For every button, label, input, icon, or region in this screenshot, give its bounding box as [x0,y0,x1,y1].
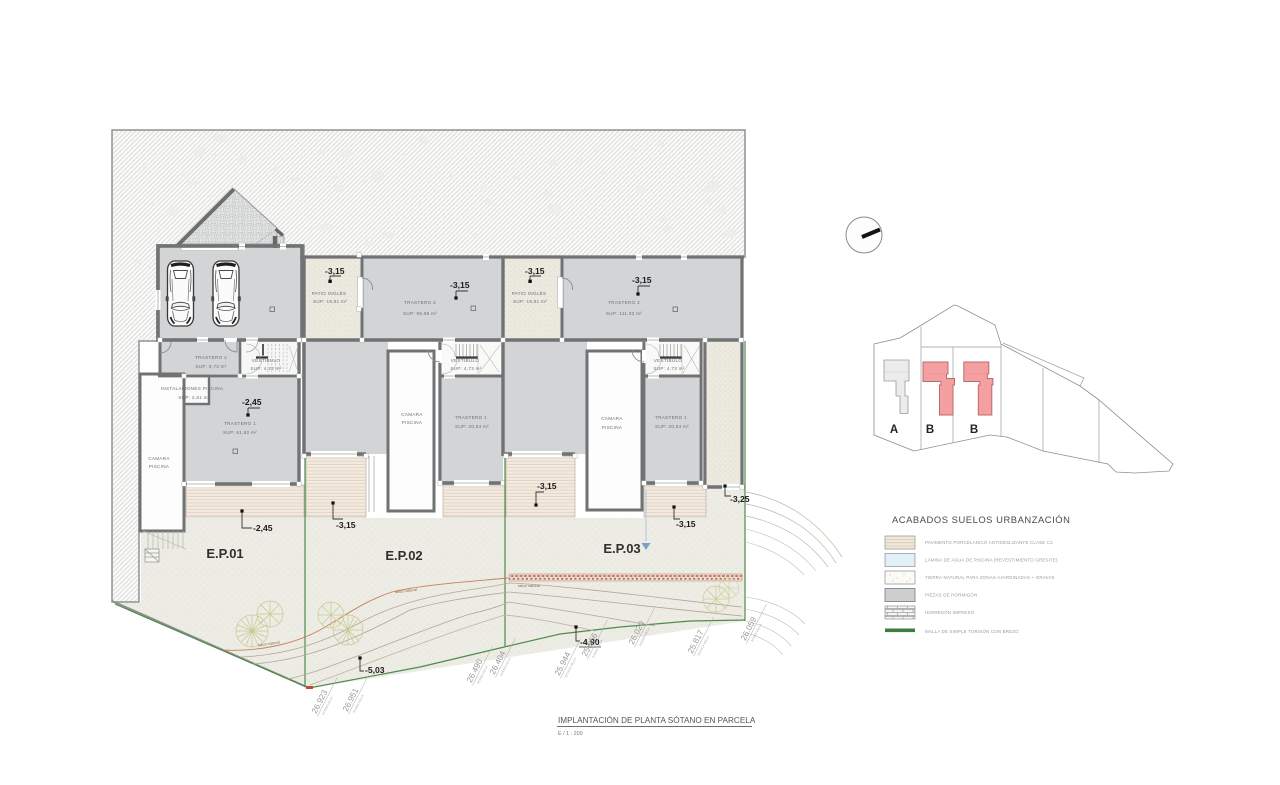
svg-text:SUP: 4,23 m²: SUP: 4,23 m² [250,366,281,371]
svg-text:SUP: 111,03 m²: SUP: 111,03 m² [606,311,642,316]
svg-text:PISCINA: PISCINA [602,425,623,430]
svg-text:TIERRA NATURAL PARA ZONAS AJAR: TIERRA NATURAL PARA ZONAS AJARDINADAS + … [925,575,1055,580]
svg-text:E.P.02: E.P.02 [385,548,422,563]
svg-text:TRASTERO 2: TRASTERO 2 [608,300,640,305]
svg-text:HORMIGÓN IMPRESO: HORMIGÓN IMPRESO [925,610,975,615]
svg-text:-3,15: -3,15 [450,280,470,290]
svg-text:-3,15: -3,15 [632,275,652,285]
svg-text:E.P.03: E.P.03 [603,541,640,556]
svg-text:-2,45: -2,45 [253,523,273,533]
svg-text:MALLA DE SIMPLE TORSIÓN CON BR: MALLA DE SIMPLE TORSIÓN CON BREZO [925,629,1019,634]
svg-text:-3,15: -3,15 [676,519,696,529]
svg-text:IMPLANTACIÓN DE PLANTA SÓTANO: IMPLANTACIÓN DE PLANTA SÓTANO EN PARCELA [558,715,756,725]
svg-text:-5,03: -5,03 [365,665,385,675]
svg-text:E / 1 : 200: E / 1 : 200 [558,731,583,737]
svg-text:VESTIBULO: VESTIBULO [451,358,480,363]
svg-text:B: B [926,424,934,436]
svg-text:-3,15: -3,15 [537,481,557,491]
svg-text:PIEZAS DE HORMIGÓN: PIEZAS DE HORMIGÓN [925,593,977,598]
svg-text:TRASTERO 1: TRASTERO 1 [224,421,256,426]
svg-text:CAMARA: CAMARA [401,412,423,417]
svg-text:ACABADOS SUELOS URBANZACIÓN: ACABADOS SUELOS URBANZACIÓN [892,514,1070,525]
svg-text:-3,15: -3,15 [325,266,345,276]
svg-text:SUP: 61,92 m²: SUP: 61,92 m² [223,430,257,435]
svg-text:E.P.01: E.P.01 [206,546,243,561]
svg-text:VESTIBULO: VESTIBULO [252,358,281,363]
svg-text:TRASTERO 2: TRASTERO 2 [404,300,436,305]
svg-text:SUP: 19,91 m²: SUP: 19,91 m² [513,299,547,304]
svg-text:SUP: 20,64 m²: SUP: 20,64 m² [455,424,489,429]
svg-text:PISCINA: PISCINA [402,420,423,425]
svg-text:INSTALACIONES PISCINA: INSTALACIONES PISCINA [161,386,224,391]
svg-text:PATIO INGLÉS: PATIO INGLÉS [312,290,347,296]
svg-text:-2,45: -2,45 [242,397,262,407]
svg-text:-3,15: -3,15 [525,266,545,276]
svg-text:A: A [890,424,898,436]
svg-text:-3,15: -3,15 [336,520,356,530]
svg-text:SUP: 4,73 m²: SUP: 4,73 m² [653,366,684,371]
svg-text:TRASTERO 2: TRASTERO 2 [195,355,227,360]
svg-text:SUP: 4,73 m²: SUP: 4,73 m² [450,366,481,371]
svg-text:VESTIBULO: VESTIBULO [654,358,683,363]
svg-text:PAVIMENTO PORCELANICO ANTIDESL: PAVIMENTO PORCELANICO ANTIDESLIZANTE CLA… [925,540,1053,545]
svg-text:SUP: 19,91 m²: SUP: 19,91 m² [313,299,347,304]
svg-text:LÁMINA DE AGUA DE PISCINA (REV: LÁMINA DE AGUA DE PISCINA (REVESTIMIENTO… [925,558,1058,563]
svg-text:TRASTERO 1: TRASTERO 1 [455,415,487,420]
svg-text:SUP: 96,06 m²: SUP: 96,06 m² [403,311,437,316]
svg-text:PISCINA: PISCINA [149,464,170,469]
svg-text:-3,25: -3,25 [730,494,750,504]
svg-text:CAMARA: CAMARA [601,416,623,421]
svg-text:talud natural: talud natural [518,583,540,588]
svg-text:CAMARA: CAMARA [148,456,170,461]
svg-text:PATIO INGLÉS: PATIO INGLÉS [512,290,547,296]
svg-text:B: B [970,424,978,436]
svg-text:SUP: 2,81 m²: SUP: 2,81 m² [178,395,209,400]
svg-text:SUP: 20,64 m²: SUP: 20,64 m² [655,424,689,429]
svg-text:TRASTERO 1: TRASTERO 1 [655,415,687,420]
svg-text:SUP: 9,73 m²: SUP: 9,73 m² [195,364,226,369]
